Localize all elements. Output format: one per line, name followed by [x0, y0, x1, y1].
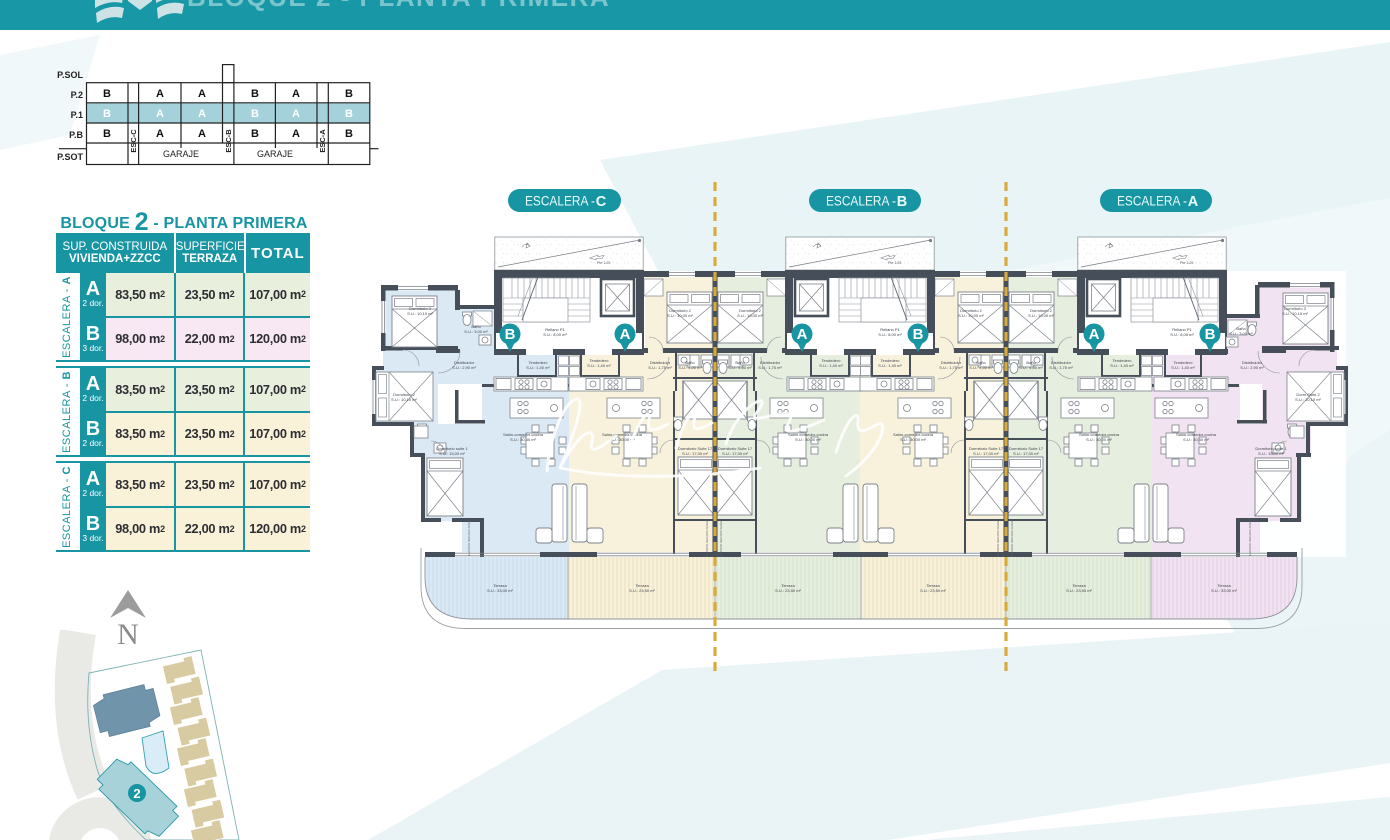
svg-text:DistribuidorS.U.: 1,75 m²: DistribuidorS.U.: 1,75 m² [1049, 360, 1073, 370]
svg-text:ESC-C: ESC-C [129, 129, 138, 153]
svg-text:A: A [1089, 326, 1100, 343]
svg-text:B: B [103, 88, 111, 100]
svg-text:ESCALERA -: ESCALERA - [525, 194, 595, 209]
svg-text:Dormitorio Suite 17S.U.: 17,00: Dormitorio Suite 17S.U.: 17,00 m² [969, 446, 1004, 456]
svg-text:A: A [198, 108, 206, 120]
svg-text:A: A [198, 88, 206, 100]
svg-text:P.1: P.1 [71, 110, 83, 120]
svg-text:B: B [251, 108, 259, 120]
svg-text:ESPACIO SECADO ACERA: ESPACIO SECADO ACERA [1010, 519, 1014, 557]
svg-text:B: B [345, 108, 353, 120]
svg-text:Dormitorio 3S.U.: 10,10 m²: Dormitorio 3S.U.: 10,10 m² [407, 306, 433, 316]
svg-text:2: 2 [133, 786, 140, 801]
svg-text:ESC-A: ESC-A [318, 129, 327, 153]
svg-text:TendederoS.U.: 1,40 m²: TendederoS.U.: 1,40 m² [526, 360, 550, 370]
svg-text:DistribuidorS.U.: 1,75 m²: DistribuidorS.U.: 1,75 m² [758, 360, 782, 370]
svg-text:Dormitorio Suite 17S.U.: 17,00: Dormitorio Suite 17S.U.: 17,00 m² [1009, 446, 1044, 456]
svg-text:A: A [156, 108, 164, 120]
svg-text:A: A [156, 128, 164, 140]
svg-text:Dormitorio 2S.U.: 10,00 m²: Dormitorio 2S.U.: 10,00 m² [1028, 308, 1054, 318]
svg-text:Dormitorio suite 1S.U.: 15,00: Dormitorio suite 1S.U.: 15,00 m² [1255, 446, 1287, 456]
svg-text:Dormitorio suite 1S.U.: 15,00: Dormitorio suite 1S.U.: 15,00 m² [436, 446, 468, 456]
svg-text:B: B [1205, 326, 1216, 343]
svg-text:DistribuidorS.U.: 1,75 m²: DistribuidorS.U.: 1,75 m² [648, 360, 672, 370]
svg-text:ESPACIO SECADO ACERA: ESPACIO SECADO ACERA [719, 519, 723, 557]
svg-text:DistribuidorS.U.: 2,90 m²: DistribuidorS.U.: 2,90 m² [1240, 360, 1264, 370]
svg-text:ESPACIO SECADO ACERA: ESPACIO SECADO ACERA [996, 519, 1000, 557]
svg-text:Dormitorio 2S.U.: 10,00 m²: Dormitorio 2S.U.: 10,00 m² [667, 308, 693, 318]
svg-text:ESCALERA -: ESCALERA - [826, 194, 896, 209]
svg-text:P.B: P.B [69, 130, 83, 140]
svg-text:Dormitorio 2S.U.: 10,00 m²: Dormitorio 2S.U.: 10,00 m² [737, 308, 763, 318]
svg-text:A: A [292, 128, 300, 140]
svg-text:TendederoS.U.: 1,40 m²: TendederoS.U.: 1,40 m² [587, 358, 611, 368]
svg-text:ESPACIO SECADO ACERA: ESPACIO SECADO ACERA [1248, 518, 1252, 556]
svg-text:A: A [620, 326, 631, 343]
svg-text:Dormitorio 2S.U.: 10,00 m²: Dormitorio 2S.U.: 10,00 m² [958, 308, 984, 318]
svg-text:Dormitorio Suite 17S.U.: 17,00: Dormitorio Suite 17S.U.: 17,00 m² [678, 446, 713, 456]
svg-text:GARAJE: GARAJE [257, 149, 293, 159]
svg-text:A: A [292, 108, 300, 120]
svg-text:DistribuidorS.U.: 2,90 m²: DistribuidorS.U.: 2,90 m² [452, 360, 476, 370]
svg-text:Dorm Suite 2S.U.: 10,10 m²: Dorm Suite 2S.U.: 10,10 m² [1295, 392, 1321, 402]
svg-text:A: A [156, 88, 164, 100]
svg-text:Rellano P1S.U.: 8,00 m²: Rellano P1S.U.: 8,00 m² [543, 327, 567, 337]
svg-text:TendederoS.U.: 1,40 m²: TendederoS.U.: 1,40 m² [878, 358, 902, 368]
svg-text:C: C [596, 194, 607, 210]
svg-text:ESPACIO SECADO ACERA: ESPACIO SECADO ACERA [467, 518, 471, 556]
svg-text:P.2: P.2 [71, 90, 83, 100]
svg-text:B: B [897, 194, 907, 210]
svg-text:A: A [292, 88, 300, 100]
svg-text:B: B [505, 326, 516, 343]
svg-text:B: B [913, 326, 924, 343]
svg-text:A: A [1188, 194, 1199, 210]
svg-text:A: A [198, 128, 206, 140]
svg-text:Dormitorio 3S.U.: 10,10 m²: Dormitorio 3S.U.: 10,10 m² [1282, 306, 1308, 316]
svg-text:DistribuidorS.U.: 1,75 m²: DistribuidorS.U.: 1,75 m² [939, 360, 963, 370]
svg-text:Rellano P1S.U.: 8,00 m²: Rellano P1S.U.: 8,00 m² [1170, 327, 1194, 337]
svg-text:TendederoS.U.: 1,40 m²: TendederoS.U.: 1,40 m² [819, 358, 843, 368]
svg-text:TendederoS.U.: 1,40 m²: TendederoS.U.: 1,40 m² [1171, 360, 1195, 370]
svg-text:B: B [103, 108, 111, 120]
svg-text:B: B [345, 128, 353, 140]
svg-text:B: B [251, 128, 259, 140]
svg-text:ESCALERA -: ESCALERA - [1117, 194, 1187, 209]
svg-text:P.SOT: P.SOT [57, 152, 83, 162]
svg-text:P.SOL: P.SOL [57, 70, 83, 80]
svg-text:Dormitorio 2S.U.: 10,10 m²: Dormitorio 2S.U.: 10,10 m² [391, 392, 417, 402]
svg-text:A: A [797, 326, 808, 343]
svg-text:B: B [251, 88, 259, 100]
svg-text:B: B [345, 88, 353, 100]
svg-text:TendederoS.U.: 1,40 m²: TendederoS.U.: 1,40 m² [1110, 358, 1134, 368]
svg-text:GARAJE: GARAJE [163, 149, 199, 159]
svg-text:Dormitorio Suite 17S.U.: 17,00: Dormitorio Suite 17S.U.: 17,00 m² [718, 446, 753, 456]
svg-text:Rellano P1S.U.: 8,00 m²: Rellano P1S.U.: 8,00 m² [878, 327, 902, 337]
svg-text:B: B [103, 128, 111, 140]
svg-text:ESC-B: ESC-B [224, 129, 233, 153]
svg-text:ESPACIO SECADO ACERA: ESPACIO SECADO ACERA [705, 519, 709, 557]
